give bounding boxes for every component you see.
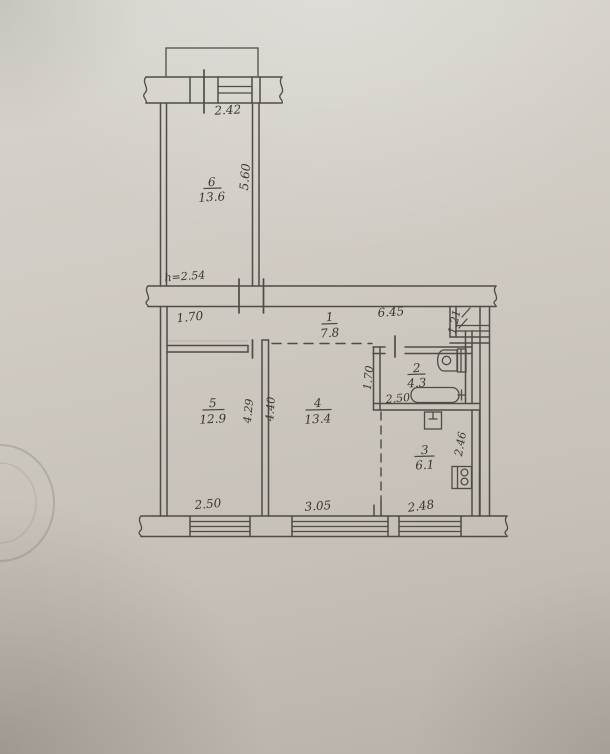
bottom-wall-band <box>139 516 508 537</box>
opening-mark <box>462 308 470 317</box>
room-5-area-label: 12.9 <box>199 411 227 426</box>
room-1-number-label: 1 <box>325 310 334 324</box>
room4-window-icon <box>292 516 388 537</box>
balcony-window-icon <box>218 87 252 94</box>
wall-break-icon <box>139 516 142 537</box>
dim-kitchen-depth: 2.46 <box>452 431 469 458</box>
wall-break-icon <box>144 77 147 103</box>
wall-break-icon <box>505 516 508 537</box>
room-4-area-label: 13.4 <box>304 411 331 426</box>
room-5-number-label: 5 <box>209 396 217 410</box>
dim-bathroom-depth: 1.70 <box>361 365 376 391</box>
room-6-area-label: 13.6 <box>198 189 226 204</box>
right-outer-wall <box>480 307 490 517</box>
dim-room4-window: 3.05 <box>304 498 332 514</box>
room-2-number-label: 2 <box>412 361 421 375</box>
top-wall-band <box>144 70 283 113</box>
labels: 6 13.6 1 7.8 2 4.3 5 12.9 4 13.4 3 6.1 2… <box>164 102 469 515</box>
room5-window-icon <box>190 516 250 537</box>
room-1-area-label: 7.8 <box>320 325 340 340</box>
left-outer-wall <box>161 307 168 517</box>
dim-room4-depth: 4.40 <box>263 396 278 422</box>
dim-ceiling-height: h=2.54 <box>164 269 206 285</box>
room-4-number-label: 4 <box>313 396 322 410</box>
room-6-number-label: 6 <box>208 175 217 189</box>
balcony-outline <box>166 48 258 76</box>
dim-room5-depth: 4.29 <box>241 398 257 425</box>
dim-bathroom-width: 2.50 <box>384 391 411 406</box>
kitchen-window-icon <box>399 516 461 537</box>
floorplan-drawing: 6 13.6 1 7.8 2 4.3 5 12.9 4 13.4 3 6.1 2… <box>0 0 610 754</box>
room-5-top-wall <box>167 346 248 353</box>
interior-wall-5-4 <box>253 340 269 516</box>
toilet-icon <box>438 349 466 372</box>
sink-icon <box>425 412 442 429</box>
wall-break-icon <box>494 286 497 307</box>
wall-break-icon <box>146 286 149 307</box>
stamp-arc <box>0 445 54 561</box>
dim-room5-window: 2.50 <box>193 496 222 512</box>
dim-hallway-left: 1.70 <box>176 309 204 326</box>
dim-room6-length: 5.60 <box>237 163 253 191</box>
scanned-floorplan-photo: 6 13.6 1 7.8 2 4.3 5 12.9 4 13.4 3 6.1 2… <box>0 0 610 754</box>
wall-break-icon <box>280 77 283 103</box>
room-2-area-label: 4.3 <box>406 375 427 390</box>
room-3-area-label: 6.1 <box>415 458 435 473</box>
dim-kitchen-window: 2.48 <box>406 497 436 515</box>
dim-hallway-length: 6.45 <box>377 304 405 320</box>
main-wall-band <box>146 279 497 313</box>
dim-balcony-window: 2.42 <box>213 102 241 117</box>
stove-icon <box>452 467 472 489</box>
room-3-number-label: 3 <box>421 443 430 457</box>
